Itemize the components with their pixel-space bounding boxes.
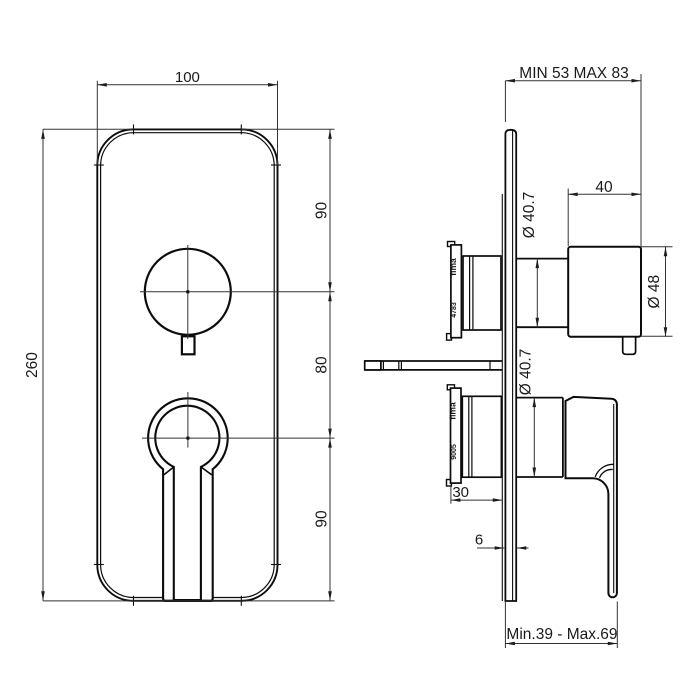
svg-text:90: 90 xyxy=(314,510,331,528)
svg-text:90: 90 xyxy=(314,202,331,220)
svg-text:4783: 4783 xyxy=(451,302,458,318)
svg-text:fima: fima xyxy=(448,258,458,276)
svg-text:30: 30 xyxy=(452,484,469,501)
svg-text:Ø 40.7: Ø 40.7 xyxy=(518,349,535,396)
svg-text:Ø 40.7: Ø 40.7 xyxy=(521,192,538,239)
svg-text:Min.39 - Max.69: Min.39 - Max.69 xyxy=(506,626,617,643)
svg-text:Ø 48: Ø 48 xyxy=(646,275,663,309)
svg-text:260: 260 xyxy=(24,352,41,378)
svg-text:100: 100 xyxy=(175,69,200,86)
svg-text:80: 80 xyxy=(314,356,331,374)
svg-text:40: 40 xyxy=(595,179,613,196)
svg-text:fima: fima xyxy=(448,402,458,420)
svg-text:MIN 53 MAX 83: MIN 53 MAX 83 xyxy=(519,65,628,82)
svg-text:6: 6 xyxy=(475,532,483,549)
svg-text:9005: 9005 xyxy=(451,444,458,460)
